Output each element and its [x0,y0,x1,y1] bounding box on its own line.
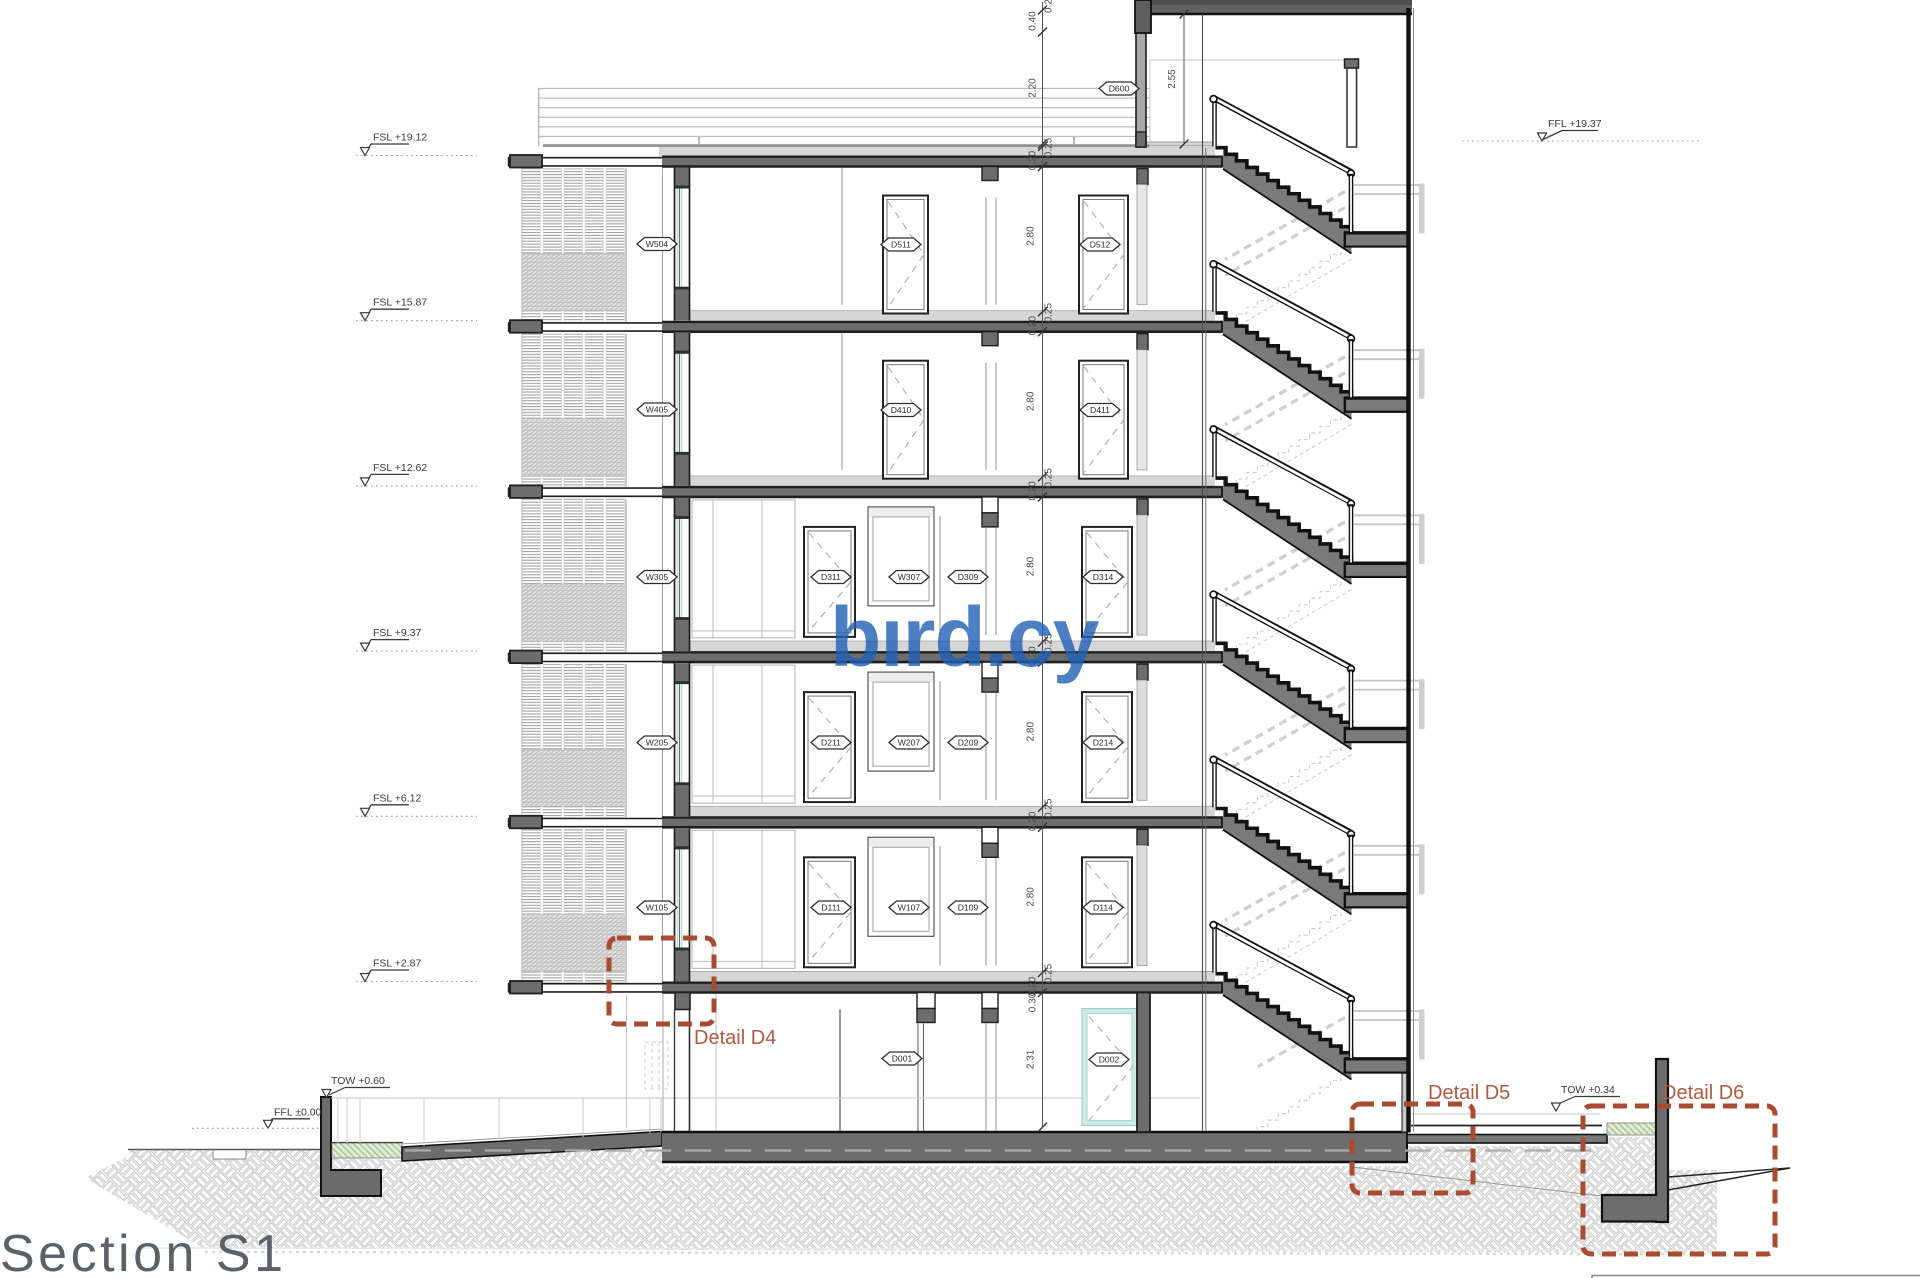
svg-text:2.55: 2.55 [1167,69,1178,89]
svg-text:D410: D410 [891,405,912,415]
svg-text:2.80: 2.80 [1026,226,1037,246]
svg-text:FSL +2.87: FSL +2.87 [373,958,422,970]
svg-text:D512: D512 [1090,240,1111,250]
svg-text:FFL ±0.00: FFL ±0.00 [274,1106,322,1118]
svg-text:0.25: 0.25 [1044,137,1055,157]
svg-text:FSL +9.37: FSL +9.37 [373,627,422,639]
svg-text:2.80: 2.80 [1026,887,1037,907]
svg-text:0.20: 0.20 [1028,481,1039,501]
svg-text:D001: D001 [892,1054,913,1064]
svg-text:Detail D4: Detail D4 [694,1027,776,1049]
svg-text:FSL +12.62: FSL +12.62 [373,462,427,474]
svg-text:D002: D002 [1099,1055,1120,1065]
svg-text:0.25: 0.25 [1044,303,1055,323]
svg-text:0.20: 0.20 [1028,316,1039,336]
svg-text:Detail D6: Detail D6 [1662,1082,1744,1104]
svg-text:D309: D309 [958,572,979,582]
svg-text:Detail D5: Detail D5 [1428,1082,1510,1104]
svg-text:D600: D600 [1109,84,1130,94]
svg-text:W405: W405 [646,405,669,415]
svg-text:D511: D511 [891,240,911,250]
svg-text:2.31: 2.31 [1026,1049,1037,1069]
svg-text:D214: D214 [1093,738,1114,748]
svg-text:W107: W107 [898,903,921,913]
svg-text:W105: W105 [646,903,669,913]
svg-text:0.25: 0.25 [1044,798,1055,818]
svg-text:FSL +15.87: FSL +15.87 [373,297,427,309]
svg-text:TOW +0.34: TOW +0.34 [1561,1084,1615,1096]
svg-text:D411: D411 [1090,405,1110,415]
svg-text:0.30: 0.30 [1028,992,1039,1012]
svg-text:FFL +19.37: FFL +19.37 [1548,118,1602,130]
svg-text:D109: D109 [958,903,979,913]
svg-text:D111: D111 [821,903,840,913]
svg-text:D209: D209 [958,738,979,748]
svg-text:bırd.cy: bırd.cy [830,590,1100,684]
svg-text:2.80: 2.80 [1026,391,1037,411]
svg-text:W205: W205 [646,738,669,748]
svg-text:0.2: 0.2 [1044,0,1055,13]
svg-text:0.20: 0.20 [1028,811,1039,831]
svg-text:W207: W207 [898,738,921,748]
svg-text:Section S1: Section S1 [0,1225,287,1278]
svg-text:W307: W307 [898,572,921,582]
svg-text:0.25: 0.25 [1044,468,1055,488]
svg-text:D311: D311 [821,572,841,582]
svg-text:0.25: 0.25 [1044,963,1055,983]
svg-text:0.40: 0.40 [1028,11,1039,31]
svg-text:D314: D314 [1093,572,1114,582]
svg-text:FSL +19.12: FSL +19.12 [373,132,427,144]
svg-text:W305: W305 [646,572,669,582]
svg-text:D114: D114 [1093,903,1113,913]
svg-text:2.80: 2.80 [1026,722,1037,742]
svg-text:W504: W504 [646,239,669,249]
svg-text:FSL +6.12: FSL +6.12 [373,792,422,804]
svg-text:D211: D211 [821,738,841,748]
svg-text:0.20: 0.20 [1028,150,1039,170]
svg-text:TOW +0.60: TOW +0.60 [331,1075,385,1087]
svg-text:2.80: 2.80 [1026,556,1037,576]
svg-text:2.20: 2.20 [1028,78,1039,98]
